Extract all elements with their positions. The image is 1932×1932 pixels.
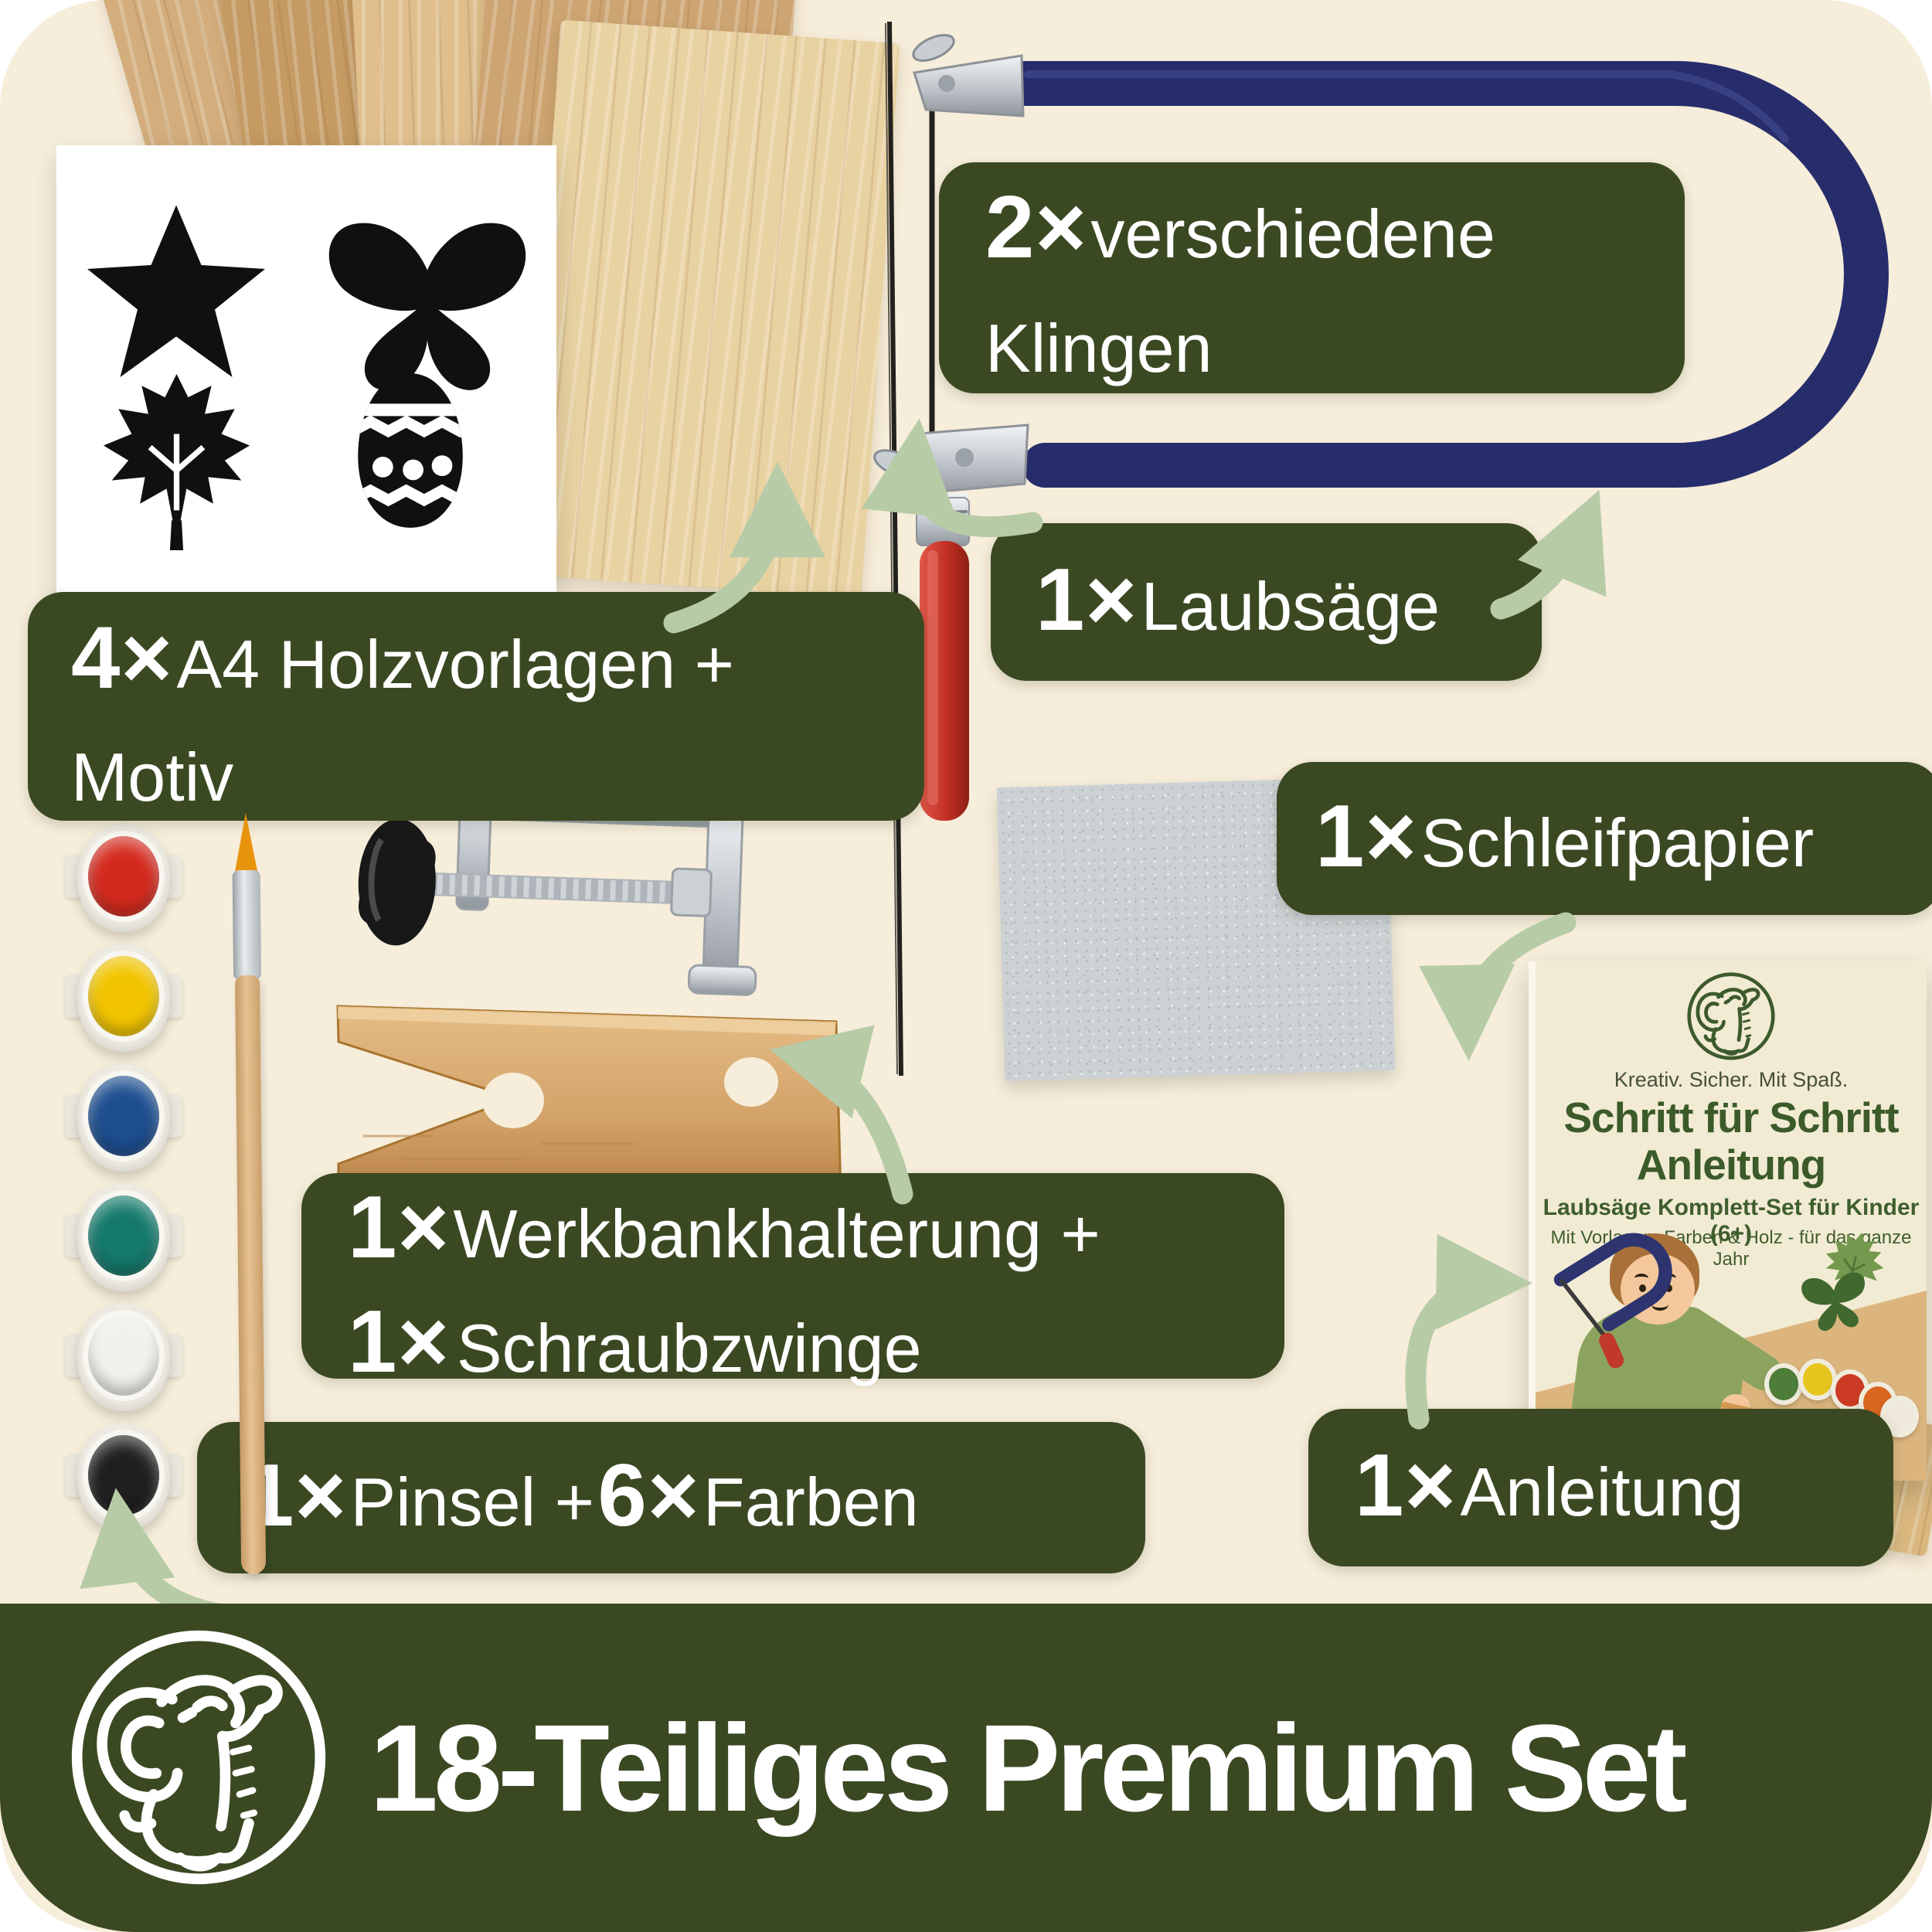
saw-handle: [917, 498, 969, 821]
label-wood-templates: 4× A4 Holzvorlagen + Motiv: [28, 592, 924, 821]
paint-pot-white: [65, 1300, 182, 1416]
paint-pot-green: [65, 1180, 182, 1296]
arrow-to-blades: [916, 445, 1032, 527]
brush-bristles: [234, 813, 258, 873]
star-motif-icon: [80, 199, 273, 393]
cream-background: Kreativ. Sicher. Mit Spaß. Schritt für S…: [0, 0, 1932, 1932]
workbench-holder: [338, 1006, 841, 1195]
label-bench-holder-clamp: 1× Werkbankhalterung + 1× Schraubzwinge: [301, 1173, 1284, 1379]
elephant-logo-icon: [66, 1625, 331, 1889]
saw-bottom-clamp: [871, 425, 1028, 547]
booklet-title: Schritt für Schritt Anleitung: [1536, 1094, 1927, 1189]
label-fretsaw: 1× Laubsäge: [991, 523, 1542, 681]
label-brush-paints: 1× Pinsel + 6× Farben: [197, 1422, 1145, 1573]
instruction-booklet: Kreativ. Sicher. Mit Spaß. Schritt für S…: [1529, 961, 1927, 1481]
wood-sheet: [522, 20, 900, 599]
easter-egg-motif-icon: [341, 368, 480, 533]
brush-ferrule: [233, 870, 261, 980]
brush-handle: [235, 975, 266, 1574]
maple-leaf-motif-icon: [94, 369, 260, 555]
saw-top-clamp: [910, 30, 1023, 116]
elephant-logo-icon: [1685, 971, 1777, 1062]
bottom-banner: 18-Teiliges Premium Set: [0, 1604, 1932, 1932]
paint-pot-blue: [65, 1060, 182, 1176]
product-infographic: Kreativ. Sicher. Mit Spaß. Schritt für S…: [0, 0, 1932, 1932]
illustration-paint-pot: [1764, 1363, 1803, 1405]
motif-template-card: [56, 145, 556, 607]
booklet-tagline: Kreativ. Sicher. Mit Spaß.: [1536, 1068, 1927, 1092]
label-blades: 2× verschiedene Klingen: [939, 162, 1685, 393]
arrow-to-booklet: [1416, 1283, 1505, 1419]
label-sandpaper: 1× Schleifpapier: [1277, 762, 1932, 915]
paint-pot-yellow: [65, 940, 182, 1056]
banner-title: 18-Teiliges Premium Set: [369, 1697, 1683, 1839]
paint-brush: [225, 813, 276, 1575]
fretsaw: [871, 30, 1866, 821]
paint-pot-black: [65, 1420, 182, 1536]
illustration-butterfly-icon: [1796, 1267, 1875, 1336]
label-manual: 1× Anleitung: [1308, 1409, 1893, 1566]
